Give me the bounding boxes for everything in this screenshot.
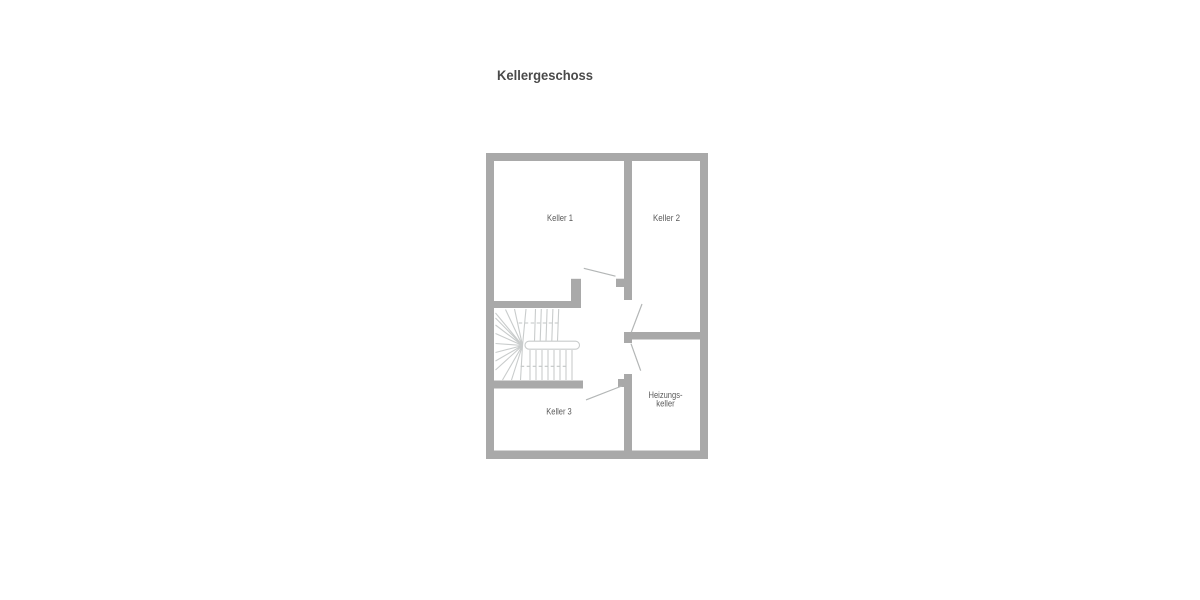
- svg-text:Keller 2: Keller 2: [653, 213, 680, 224]
- svg-text:keller: keller: [656, 399, 675, 410]
- svg-text:Keller 1: Keller 1: [547, 213, 573, 224]
- svg-text:Kellergeschoss: Kellergeschoss: [497, 67, 593, 83]
- svg-text:Keller 3: Keller 3: [546, 406, 572, 417]
